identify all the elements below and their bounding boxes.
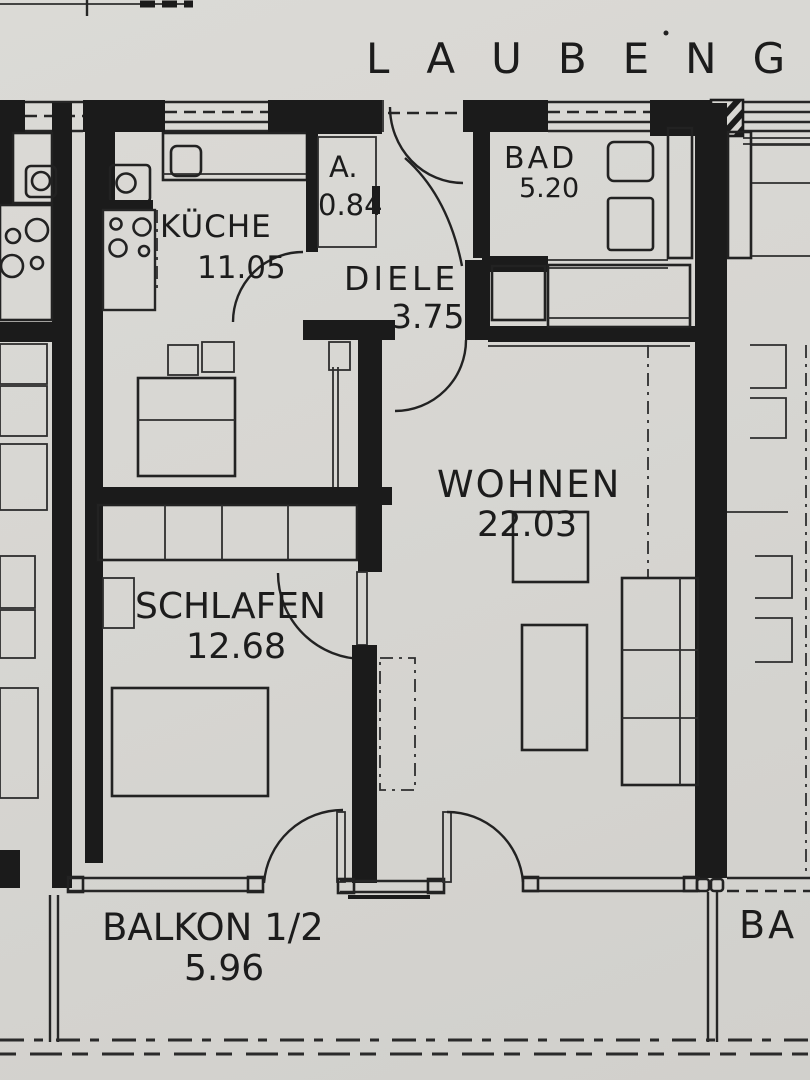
bathtub bbox=[668, 128, 692, 258]
floorplan-scan: LAUBENG KÜCHE 11.05 A. 0.84 BAD 5.20 DIE… bbox=[0, 0, 810, 1080]
neighbor-right-fixtures bbox=[727, 132, 810, 875]
kitchen-counter-sink bbox=[171, 146, 201, 176]
room-label-abstellraum: A. bbox=[329, 150, 358, 184]
top-wall bbox=[0, 96, 810, 183]
kitchen-counter bbox=[163, 133, 307, 180]
room-label-wohnen: WOHNEN bbox=[437, 463, 621, 506]
room-area-kueche: 11.05 bbox=[197, 250, 286, 286]
table bbox=[522, 625, 587, 750]
toilet bbox=[608, 142, 653, 181]
room-area-abstellraum: 0.84 bbox=[318, 188, 383, 222]
nightstand bbox=[103, 578, 134, 628]
bed bbox=[112, 688, 268, 796]
window-kitchen bbox=[165, 102, 268, 131]
sofa bbox=[622, 578, 698, 785]
room-area-schlafen: 12.68 bbox=[186, 627, 286, 667]
balcony-door-arc-right bbox=[447, 812, 523, 882]
room-area-wohnen: 22.03 bbox=[477, 505, 577, 545]
living-door-arc bbox=[395, 340, 466, 411]
room-label-diele: DIELE bbox=[344, 259, 459, 298]
room-label-balkon: BALKON 1/2 bbox=[102, 906, 324, 949]
hall-cabinet bbox=[492, 266, 545, 320]
floor-plan: LAUBENG KÜCHE 11.05 A. 0.84 BAD 5.20 DIE… bbox=[0, 0, 810, 1080]
entrance-door bbox=[383, 100, 463, 183]
living-shelf bbox=[380, 658, 415, 790]
room-label-bad: BAD bbox=[504, 141, 577, 176]
neighbor-left-fixtures bbox=[0, 128, 56, 888]
room-label-kueche: KÜCHE bbox=[160, 208, 272, 245]
bath-sink bbox=[608, 198, 653, 250]
room-area-diele: 3.75 bbox=[391, 297, 464, 336]
room-label-schlafen: SCHLAFEN bbox=[135, 586, 326, 627]
bedroom-door-leaf bbox=[357, 572, 367, 645]
room-area-bad: 5.20 bbox=[519, 173, 579, 204]
entrance-door-arc bbox=[390, 107, 463, 183]
window-neighbor-bath bbox=[743, 102, 810, 144]
right-party-wall bbox=[695, 103, 727, 878]
scan-artifacts bbox=[0, 0, 669, 36]
bath-door-arc bbox=[405, 158, 462, 266]
dining-set bbox=[138, 342, 235, 476]
bedroom-wardrobe bbox=[98, 505, 357, 560]
neighbor-balcony-label: BA bbox=[739, 903, 797, 947]
neighbor-bathtub bbox=[728, 132, 751, 258]
living-room bbox=[513, 345, 698, 785]
corridor-label: LAUBENG bbox=[366, 34, 810, 83]
window-bath bbox=[548, 102, 650, 131]
room-area-balkon: 5.96 bbox=[184, 948, 264, 989]
balcony-door-arc-left bbox=[264, 810, 343, 883]
radiator bbox=[329, 342, 350, 370]
